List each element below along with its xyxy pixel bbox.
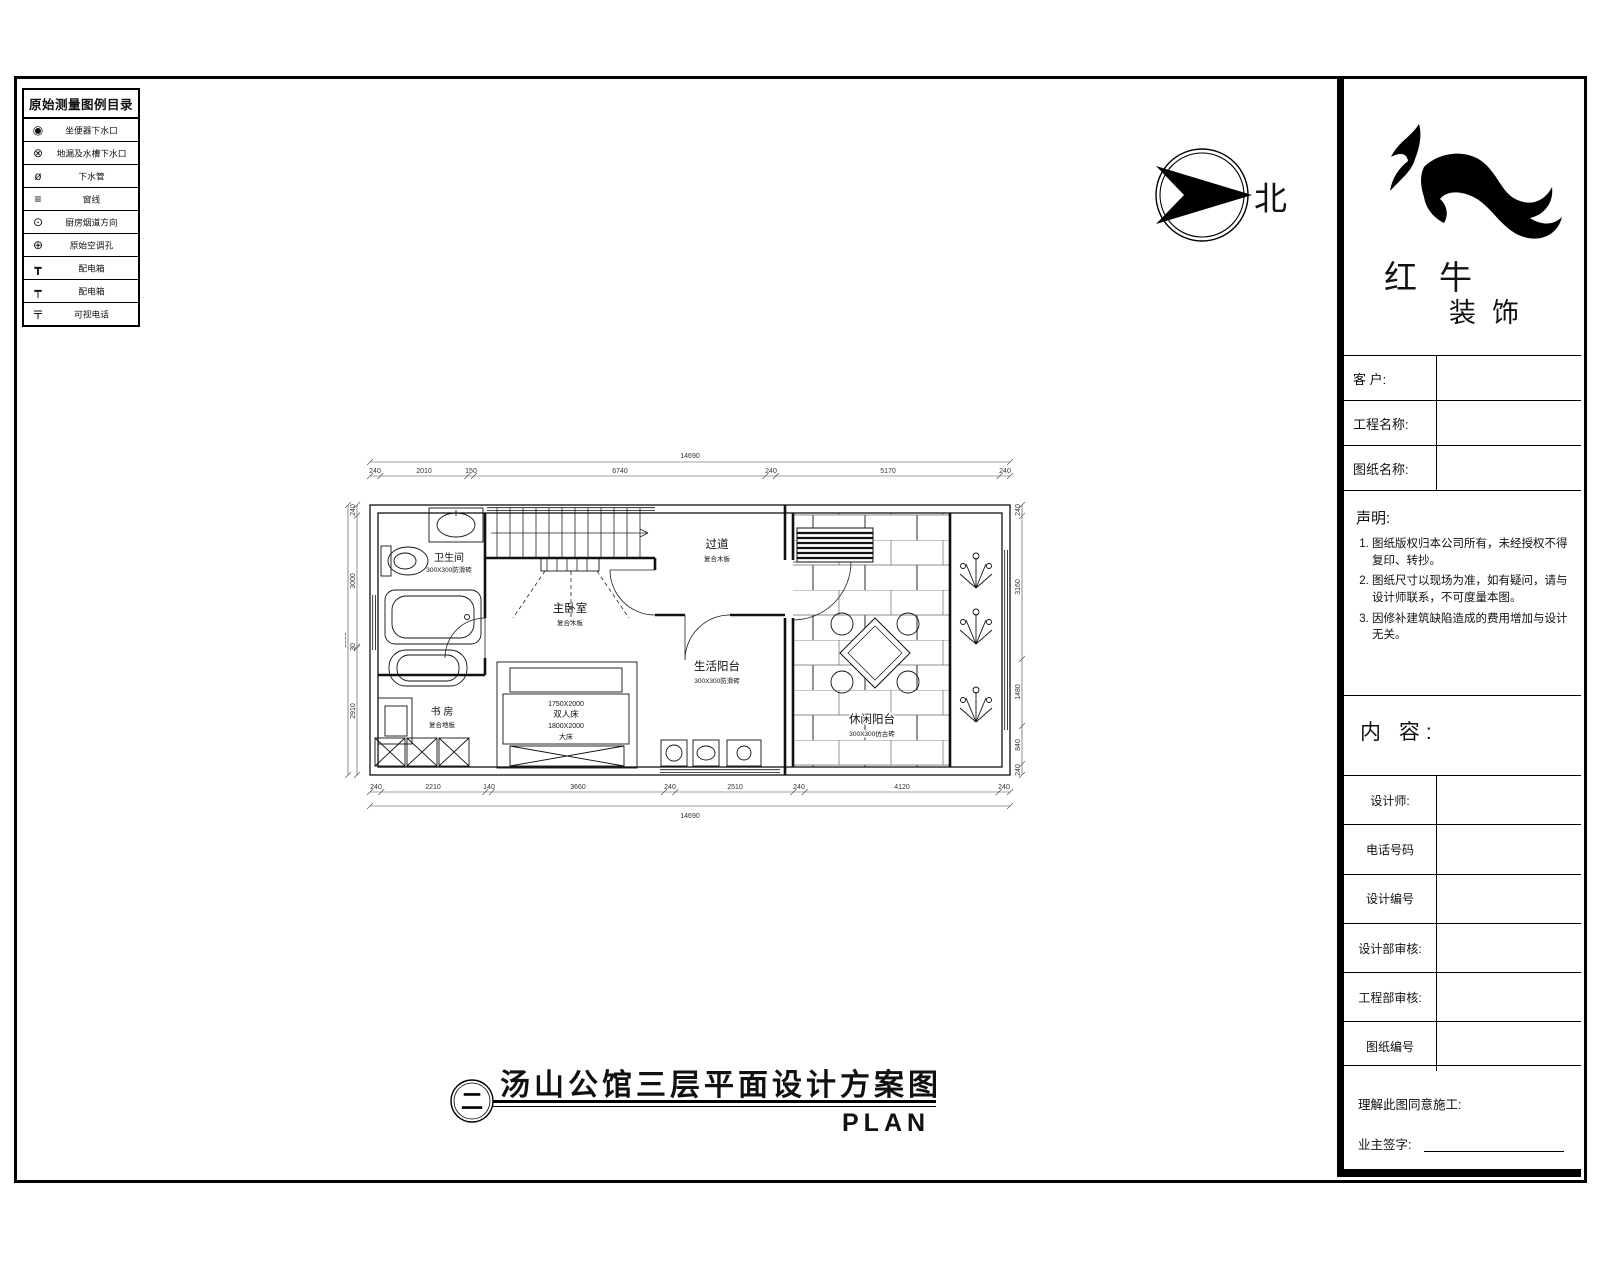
content-label: 内 容:: [1360, 716, 1438, 746]
svg-text:240: 240: [664, 784, 676, 791]
plan-label: PLAN: [842, 1109, 930, 1138]
room-corridor-finish: 复合木板: [704, 554, 731, 563]
legend-row: ≡窗线: [24, 188, 138, 211]
svg-text:大床: 大床: [559, 732, 573, 741]
bathtub: [385, 590, 481, 644]
svg-text:240: 240: [793, 784, 805, 791]
statement-title: 声明:: [1356, 507, 1573, 528]
field-drawing-name-value[interactable]: [1437, 446, 1581, 490]
row-design-review-value[interactable]: [1437, 924, 1581, 972]
wardrobe: [375, 738, 469, 766]
legend-row: ┳配电箱: [24, 257, 138, 280]
svg-text:240: 240: [1015, 504, 1022, 516]
row-designer-value[interactable]: [1437, 776, 1581, 824]
signature-section: 理解此图同意施工: 业主签字:: [1344, 1065, 1581, 1169]
svg-text:240: 240: [999, 468, 1011, 475]
plant: [960, 687, 992, 722]
drawing-title: 汤山公馆三层平面设计方案图: [500, 1060, 910, 1104]
svg-text:240: 240: [765, 468, 777, 475]
room-life-balcony-finish: 300X300防滑砖: [694, 676, 740, 685]
consent-label: 理解此图同意施工:: [1358, 1094, 1461, 1113]
field-customer-value[interactable]: [1437, 356, 1581, 400]
legend-row: ◉坐便器下水口: [24, 119, 138, 142]
plant: [960, 609, 992, 644]
svg-text:2010: 2010: [416, 468, 432, 475]
info-rows: 设计师: 电话号码 设计编号 设计部审核: 工程部审核: 图纸编号: [1344, 775, 1581, 1071]
field-drawing-name: 图纸名称:: [1344, 445, 1581, 490]
svg-text:2210: 2210: [425, 784, 441, 791]
drawing-number: 二: [461, 1089, 483, 1114]
room-leisure-balcony-label: 休闲阳台: [849, 712, 895, 726]
statement-item: 图纸版权归本公司所有，未经授权不得复印、转抄。: [1372, 536, 1573, 569]
row-drawing-no: 图纸编号: [1344, 1021, 1581, 1070]
row-engineering-review: 工程部审核:: [1344, 972, 1581, 1021]
room-corridor-label: 过道: [706, 537, 729, 551]
basin-counter: [389, 650, 467, 686]
drawing-number-bubble: 二: [448, 1077, 496, 1125]
title-block: 红牛 装饰 客 户: 工程名称: 图纸名称: 声明: 图纸版权归本公司所有，未经…: [1344, 79, 1581, 1169]
svg-text:1750X2000: 1750X2000: [548, 701, 584, 708]
north-arrow: 北: [1140, 138, 1320, 258]
room-master-finish: 复合木板: [557, 618, 584, 627]
distribution-box2-icon: ┯: [24, 284, 52, 298]
svg-text:3000: 3000: [350, 573, 357, 589]
svg-text:1480: 1480: [1015, 684, 1022, 700]
company-logo: 红牛 装饰: [1344, 79, 1581, 355]
svg-text:240: 240: [350, 504, 357, 516]
row-drawing-no-value[interactable]: [1437, 1022, 1581, 1070]
legend-row: ⊗地漏及水槽下水口: [24, 142, 138, 165]
video-phone-icon: 〒: [24, 306, 52, 323]
svg-text:140: 140: [483, 784, 495, 791]
row-phone: 电话号码: [1344, 824, 1581, 873]
legend-row: ø下水管: [24, 165, 138, 188]
kitchen-flue-icon: ⊙: [24, 215, 52, 229]
svg-text:6740: 6740: [612, 468, 628, 475]
room-bathroom-label: 卫生间: [434, 551, 464, 564]
statement-section: 声明: 图纸版权归本公司所有，未经授权不得复印、转抄。 图纸尺寸以现场为准，如有…: [1344, 490, 1581, 695]
dim-left-total: 5930: [345, 632, 348, 648]
svg-text:1800X2000: 1800X2000: [548, 723, 584, 730]
legend-row: 〒可视电话: [24, 303, 138, 325]
stairs: [491, 508, 648, 558]
field-customer: 客 户:: [1344, 355, 1581, 400]
room-study-label: 书 房: [431, 705, 454, 718]
distribution-box-icon: ┳: [24, 261, 52, 275]
window-line-icon: ≡: [24, 192, 52, 206]
toilet-drain-icon: ◉: [24, 123, 52, 137]
signature-line[interactable]: [1424, 1150, 1564, 1152]
louver-unit: [797, 528, 873, 562]
legend-row: ⊕原始空调孔: [24, 234, 138, 257]
row-design-review: 设计部审核:: [1344, 923, 1581, 972]
drain-pipe-icon: ø: [24, 169, 52, 183]
laundry-units: [661, 740, 761, 766]
legend-row: ⊙厨房烟道方向: [24, 211, 138, 234]
toilet: [381, 546, 428, 576]
svg-text:30: 30: [350, 643, 357, 651]
row-designer: 设计师:: [1344, 775, 1581, 824]
bed-annotation: 1750X2000 双人床 1800X2000 大床: [548, 701, 584, 741]
svg-text:3160: 3160: [1015, 579, 1022, 595]
doors: [445, 562, 851, 660]
room-study-finish: 复合地板: [429, 720, 456, 729]
svg-text:4120: 4120: [894, 784, 910, 791]
svg-text:150: 150: [465, 468, 477, 475]
statement-item: 图纸尺寸以现场为准，如有疑问，请与设计师联系，不可度量本图。: [1372, 573, 1573, 606]
svg-text:240: 240: [369, 468, 381, 475]
content-section: 内 容:: [1344, 695, 1581, 775]
title-underline-thin: [452, 1106, 936, 1107]
room-life-balcony-label: 生活阳台: [694, 659, 740, 673]
north-label: 北: [1254, 172, 1287, 220]
row-design-no-value[interactable]: [1437, 875, 1581, 923]
row-design-no: 设计编号: [1344, 874, 1581, 923]
room-master-label: 主卧室: [553, 601, 588, 615]
titleblock-bottom-bar: [1337, 1169, 1581, 1177]
svg-text:240: 240: [998, 784, 1010, 791]
owner-signature-label: 业主签字:: [1358, 1134, 1411, 1153]
logo-sub: 装饰: [1449, 291, 1535, 330]
ac-hole-icon: ⊕: [24, 238, 52, 252]
row-phone-value[interactable]: [1437, 825, 1581, 873]
svg-text:240: 240: [1015, 764, 1022, 776]
field-project-name: 工程名称:: [1344, 400, 1581, 445]
legend-title: 原始测量图例目录: [24, 90, 138, 119]
svg-text:双人床: 双人床: [553, 709, 579, 719]
field-project-name-value[interactable]: [1437, 401, 1581, 445]
svg-text:3660: 3660: [570, 784, 586, 791]
svg-text:2910: 2910: [350, 703, 357, 719]
statement-item: 因修补建筑缺陷造成的费用增加与设计无关。: [1372, 611, 1573, 644]
svg-text:5170: 5170: [880, 468, 896, 475]
room-leisure-balcony-finish: 300X300仿古砖: [849, 729, 895, 738]
plant: [960, 553, 992, 588]
floor-drain-icon: ⊗: [24, 146, 52, 160]
study-desk: [378, 698, 412, 744]
svg-text:840: 840: [1015, 739, 1022, 751]
dim-top-total: 14690: [680, 453, 700, 460]
row-engineering-review-value[interactable]: [1437, 973, 1581, 1021]
svg-text:2510: 2510: [727, 784, 743, 791]
north-compass-icon: [1140, 138, 1320, 258]
titleblock-divider: [1337, 76, 1344, 1177]
legend-table: 原始测量图例目录 ◉坐便器下水口 ⊗地漏及水槽下水口 ø下水管 ≡窗线 ⊙厨房烟…: [22, 88, 140, 327]
dim-bottom-total: 14690: [680, 813, 700, 820]
svg-text:240: 240: [370, 784, 382, 791]
room-bathroom-finish: 300X300防滑砖: [426, 565, 472, 574]
legend-row: ┯配电箱: [24, 280, 138, 303]
floor-plan: 14690 240 2010 150 6740 240 5170 240 146…: [345, 440, 1045, 830]
